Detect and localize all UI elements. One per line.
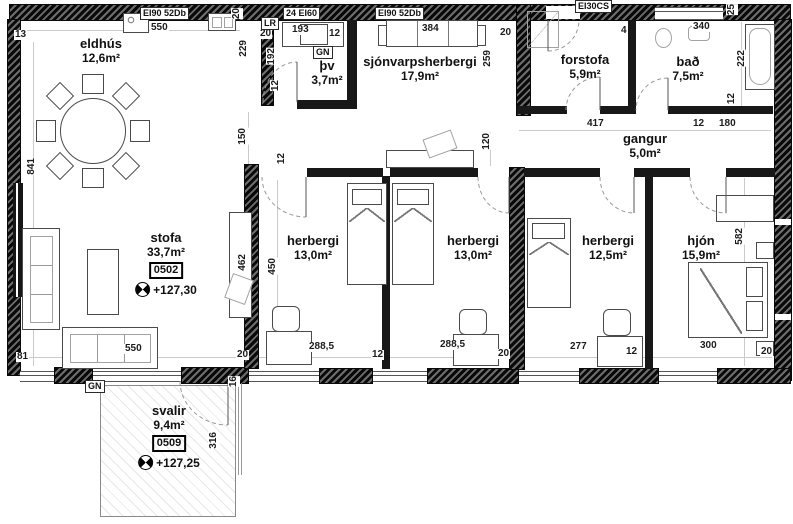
elevation-value: +127,25 xyxy=(156,456,200,470)
dim-text: 12 xyxy=(328,29,341,39)
blanket-fold xyxy=(394,208,432,222)
room-area: 15,9m² xyxy=(682,248,720,263)
dim-text: 550 xyxy=(124,344,143,354)
dim-text: 841 xyxy=(26,158,38,175)
floor-plan: EI90 52Db 24 EI60 EI90 52Db EI30CS LR GN… xyxy=(0,0,793,524)
room-name: þv xyxy=(311,58,342,73)
room-area: 17,9m² xyxy=(363,69,476,84)
elevation-label: +127,25 xyxy=(138,455,200,470)
dim-text: 259 xyxy=(482,50,494,67)
dim-text: 229 xyxy=(238,40,250,57)
dim-text: 20 xyxy=(497,349,510,359)
wall xyxy=(645,176,653,369)
dim-text: 120 xyxy=(481,133,493,150)
room-area: 5,9m² xyxy=(561,67,609,82)
room-name: svalir xyxy=(138,403,200,418)
dining-table xyxy=(60,98,126,164)
dim-text: 20 xyxy=(259,29,272,39)
door-swing xyxy=(478,177,509,213)
marker-label: GN xyxy=(85,380,105,393)
blanket-fold xyxy=(529,242,569,255)
room-name: stofa xyxy=(135,230,197,245)
room-label-sjonvarpsherbergi: sjónvarpsherbergi 17,9m² xyxy=(363,54,476,84)
balcony-divider xyxy=(238,383,242,475)
room-name: eldhús xyxy=(80,36,122,51)
dim-text: 20 xyxy=(760,347,773,357)
dim-text: 417 xyxy=(586,119,605,129)
unit-number-badge: 0509 xyxy=(152,435,186,452)
wall xyxy=(775,20,791,380)
room-label-thv: þv 3,7m² xyxy=(311,58,342,88)
toilet xyxy=(655,28,672,48)
door-swing xyxy=(262,177,306,217)
dim-text: 300 xyxy=(699,341,718,351)
bathtub-basin xyxy=(749,28,771,85)
room-label-gangur: gangur 5,0m² xyxy=(623,131,667,161)
dim-text: 12 xyxy=(276,153,288,164)
pillow xyxy=(532,223,565,239)
marker-label: GN xyxy=(313,46,333,59)
wall xyxy=(510,168,524,369)
dim-text: 193 xyxy=(291,25,310,35)
dim-text: 16 xyxy=(228,376,240,387)
sofa-cushions xyxy=(30,236,53,323)
wall xyxy=(517,106,567,114)
wall xyxy=(390,168,478,177)
wall-rating-label: EI90 52Db xyxy=(140,7,189,20)
dim-text: 25 xyxy=(726,4,738,15)
wall xyxy=(307,168,383,177)
wall xyxy=(524,168,600,177)
sofa-armrest xyxy=(477,25,486,46)
pillow xyxy=(746,267,763,297)
dim-text: 81 xyxy=(16,352,29,362)
room-name: hjón xyxy=(682,233,720,248)
blanket-fold xyxy=(700,268,742,334)
dim-text: 384 xyxy=(421,24,440,34)
dim-text: 316 xyxy=(208,432,220,449)
dim-text: 180 xyxy=(718,119,737,129)
door-swing xyxy=(600,177,634,213)
dining-chair xyxy=(82,168,104,188)
elevation-label: +127,30 xyxy=(135,282,197,297)
room-label-svalir: svalir 9,4m² 0509 +127,25 xyxy=(138,403,200,470)
desk xyxy=(266,331,312,365)
dim-text: 12 xyxy=(270,80,282,91)
dining-chair xyxy=(36,120,56,142)
dim-text: 340 xyxy=(692,22,711,32)
dim-text: 288,5 xyxy=(308,342,335,352)
room-area: 9,4m² xyxy=(138,418,200,433)
pillow xyxy=(352,189,382,205)
wall xyxy=(428,369,518,383)
window xyxy=(775,219,791,225)
dim-text: 550 xyxy=(150,23,169,33)
dim-text: 582 xyxy=(734,228,746,245)
room-label-herbergi-2: herbergi 13,0m² xyxy=(447,233,499,263)
room-name: herbergi xyxy=(287,233,339,248)
desk-chair xyxy=(272,306,300,332)
coffee-table xyxy=(87,249,119,315)
wall xyxy=(646,168,690,177)
elevation-value: +127,30 xyxy=(153,283,197,297)
wall xyxy=(718,369,790,383)
room-label-herbergi-3: herbergi 12,5m² xyxy=(582,233,634,263)
door-swing xyxy=(636,78,668,110)
window xyxy=(775,314,791,320)
room-area: 5,0m² xyxy=(623,146,667,161)
blanket-fold xyxy=(349,208,385,222)
desk-chair xyxy=(603,309,631,336)
dining-chair xyxy=(46,152,74,180)
dim-text: 277 xyxy=(569,342,588,352)
dining-chair xyxy=(130,120,150,142)
dim-text: 13 xyxy=(14,30,27,40)
sofa xyxy=(62,327,158,369)
door-swing xyxy=(690,177,726,213)
room-area: 13,0m² xyxy=(447,248,499,263)
room-area: 33,7m² xyxy=(135,245,197,260)
dim-text: 192 xyxy=(266,48,278,65)
window xyxy=(655,7,723,20)
room-label-bad: bað 7,5m² xyxy=(672,54,703,84)
unit-number-badge: 0502 xyxy=(149,262,183,279)
room-name: herbergi xyxy=(447,233,499,248)
dim-text: 12 xyxy=(726,93,738,104)
door-swing xyxy=(548,20,579,51)
bathtub xyxy=(745,24,775,90)
elevation-marker-icon xyxy=(138,455,153,470)
room-name: herbergi xyxy=(582,233,634,248)
room-name: bað xyxy=(672,54,703,69)
dim-text: 20 xyxy=(499,28,512,38)
room-area: 12,5m² xyxy=(582,248,634,263)
dim-text: 450 xyxy=(267,258,279,275)
room-name: sjónvarpsherbergi xyxy=(363,54,476,69)
pillow xyxy=(397,189,429,205)
room-label-herbergi-1: herbergi 13,0m² xyxy=(287,233,339,263)
dim-text: 20 xyxy=(236,350,249,360)
wall-rating-label: EI90 52Db xyxy=(375,7,424,20)
room-label-hjon: hjón 15,9m² xyxy=(682,233,720,263)
wall-rating-label: EI30CS xyxy=(575,0,612,13)
room-area: 12,6m² xyxy=(80,51,122,66)
window xyxy=(20,371,775,382)
room-area: 13,0m² xyxy=(287,248,339,263)
wall xyxy=(628,20,636,110)
sink-basin xyxy=(212,17,222,28)
dining-chair xyxy=(112,82,140,110)
dim-text: 462 xyxy=(237,254,249,271)
room-label-eldhus: eldhús 12,6m² xyxy=(80,36,122,66)
wall-rating-label: 24 EI60 xyxy=(283,7,320,20)
dining-chair xyxy=(112,152,140,180)
dim-text: 20 xyxy=(231,8,243,19)
wall xyxy=(668,106,773,114)
nightstand xyxy=(756,242,774,259)
room-label-forstofa: forstofa 5,9m² xyxy=(561,52,609,82)
room-name: gangur xyxy=(623,131,667,146)
marker-label: LR xyxy=(261,17,279,30)
room-name: forstofa xyxy=(561,52,609,67)
wall xyxy=(600,106,636,114)
room-label-stofa: stofa 33,7m² 0502 +127,30 xyxy=(135,230,197,297)
wall xyxy=(726,168,775,177)
dining-chair xyxy=(82,74,104,94)
dim-text: 12 xyxy=(371,350,384,360)
room-area: 3,7m² xyxy=(311,73,342,88)
wall xyxy=(297,100,357,109)
dim-text: 4 xyxy=(620,26,628,36)
dim-text: 288,5 xyxy=(439,340,466,350)
dim-text: 150 xyxy=(237,128,249,145)
wall xyxy=(347,20,357,105)
wall xyxy=(580,369,658,383)
dim-text: 12 xyxy=(625,347,638,357)
desk-chair xyxy=(459,309,487,335)
wall xyxy=(320,369,372,383)
dim-text: 222 xyxy=(736,50,748,67)
elevation-marker-icon xyxy=(135,282,150,297)
room-area: 7,5m² xyxy=(672,69,703,84)
sofa-armrest xyxy=(378,25,387,46)
pillow xyxy=(746,301,763,331)
dim-text: 12 xyxy=(692,119,705,129)
sofa xyxy=(22,228,60,330)
